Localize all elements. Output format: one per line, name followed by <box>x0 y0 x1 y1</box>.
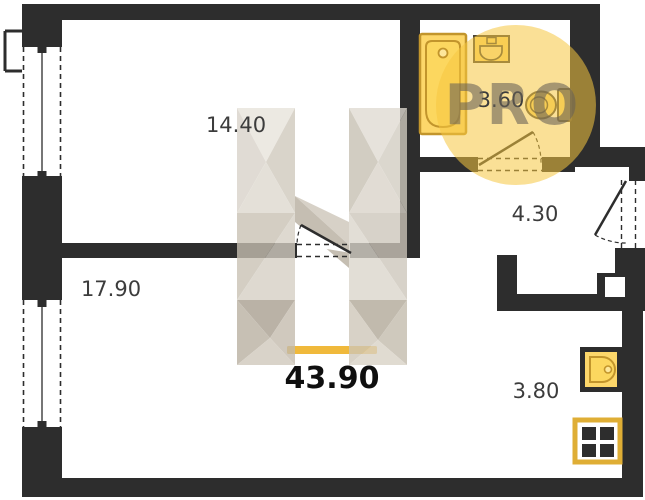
floor-plan: 14.40 3.60 4.30 17.90 3.80 43.90 PRO <box>0 0 645 500</box>
total-area-label: 43.90 <box>285 361 380 396</box>
kitchen-sink-icon <box>580 347 622 392</box>
window-bottom <box>24 299 61 429</box>
balcony-ledge <box>5 31 22 71</box>
window-top <box>5 31 61 179</box>
room-bottom-area-label: 17.90 <box>81 277 141 301</box>
stove-icon <box>575 420 620 462</box>
hallway-area-label: 4.30 <box>512 202 559 226</box>
kitchen-area-label: 3.80 <box>513 379 560 403</box>
room-top-area-label: 14.40 <box>206 113 266 137</box>
pro-watermark-text: PRO <box>445 73 580 138</box>
entrance-door <box>595 180 636 248</box>
